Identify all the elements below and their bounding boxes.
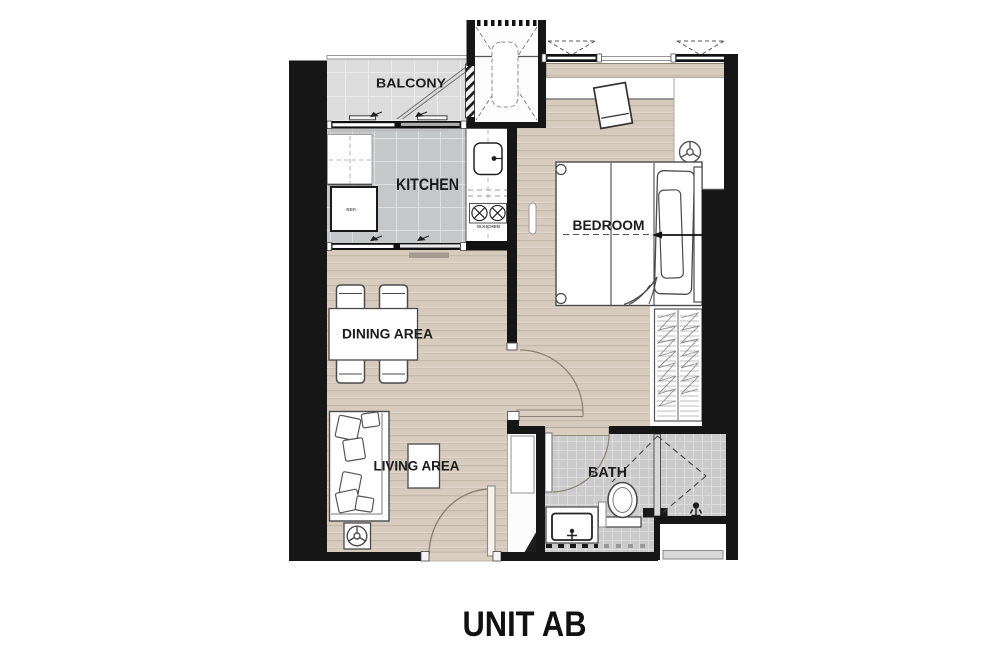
- svg-text:LIVING AREA: LIVING AREA: [374, 459, 460, 474]
- svg-text:UNIT AB: UNIT AB: [463, 605, 587, 644]
- svg-text:W.KICHEN: W.KICHEN: [477, 224, 501, 229]
- svg-text:KITCHEN: KITCHEN: [396, 176, 459, 194]
- svg-text:REF.: REF.: [346, 207, 356, 213]
- svg-text:DINING AREA: DINING AREA: [342, 327, 433, 342]
- svg-text:BEDROOM: BEDROOM: [573, 218, 645, 233]
- svg-text:BALCONY: BALCONY: [376, 76, 446, 91]
